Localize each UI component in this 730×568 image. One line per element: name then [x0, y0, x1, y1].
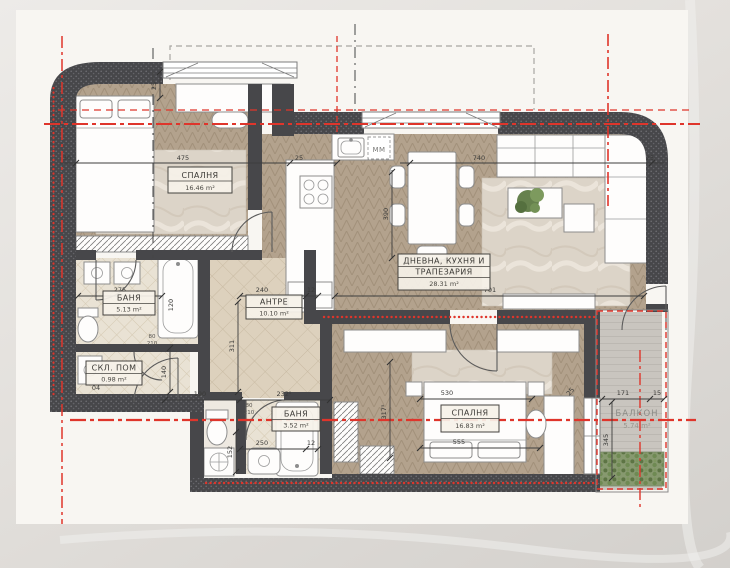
dim-wall-b: 25 — [150, 82, 158, 90]
room-label-storage: СКЛ. ПОМ 0.98 m² — [86, 361, 142, 385]
wall-bath1-right — [198, 258, 210, 394]
living-name-2: ТРАПЕЗАРИЯ — [414, 268, 472, 277]
bath2-name: БАНЯ — [284, 410, 308, 419]
dim-balcony-width: 171 — [617, 389, 629, 397]
balcony-planter — [598, 452, 664, 486]
dim-door2-w: 80 — [246, 403, 253, 409]
dim-bed2-depth: 317⁵ — [380, 404, 388, 419]
room-label-bedroom2: СПАЛНЯ 16.83 m² — [441, 405, 499, 432]
dim-entry-width: 240 — [256, 286, 268, 294]
window-living — [362, 112, 500, 128]
room-label-living: ДНЕВНА, КУХНЯ И ТРАПЕЗАРИЯ 28.31 m² — [398, 254, 490, 290]
living-area: 28.31 m² — [429, 280, 459, 288]
dim-partition-a: 12 — [307, 286, 315, 294]
room-label-bedroom1: СПАЛНЯ 16.46 m² — [168, 167, 232, 193]
stove — [300, 176, 332, 208]
room-label-bath1: БАНЯ 5.13 m² — [103, 291, 155, 315]
dim-kitchen-depth: 390 — [382, 208, 390, 220]
entry-area: 10.10 m² — [259, 310, 289, 318]
wall-bedroom1-right — [248, 84, 262, 210]
floor-plan-page: 475 30 25 740 25 390 701 240 12 275 311 … — [0, 0, 730, 568]
dim-bed2-width2: 555 — [453, 438, 465, 446]
dim-left-niche: 30 — [63, 154, 71, 162]
room-label-entry: АНТРЕ 10.10 m² — [246, 295, 302, 319]
dim-balcony-edge: 15 — [653, 389, 661, 397]
wall-storage-divider — [76, 344, 198, 352]
dim-partition-b: 12 — [307, 439, 315, 447]
dim-bath2-depth: 152 — [226, 446, 234, 458]
floor-plan-canvas: 475 30 25 740 25 390 701 240 12 275 311 … — [0, 0, 730, 568]
bedroom1-area: 16.46 m² — [185, 184, 215, 192]
storage-area: 0.98 m² — [101, 376, 127, 384]
bath2-area: 3.52 m² — [283, 422, 309, 430]
dim-wall-a: 25 — [295, 154, 303, 162]
dim-bed2-width: 530 — [441, 389, 453, 397]
wardrobe-bedroom1 — [76, 236, 248, 252]
storage-name: СКЛ. ПОМ — [92, 364, 137, 373]
bedroom1-name: СПАЛНЯ — [181, 171, 218, 180]
bed-bedroom1 — [76, 96, 154, 232]
dim-bath2-width: 250 — [256, 439, 268, 447]
balcony-area: 5.74 m² — [623, 422, 651, 430]
living-name-1: ДНЕВНА, КУХНЯ И — [403, 257, 485, 266]
bath1-name: БАНЯ — [117, 294, 141, 303]
wall-bath1-top-a — [76, 250, 96, 260]
dim-bedroom1-width: 475 — [177, 154, 189, 162]
floor-entry-strip — [304, 324, 320, 394]
dim-hall-a: 140 — [160, 366, 168, 378]
dim-wall-c: 25 — [646, 154, 654, 162]
wall-kitchen-entry — [304, 250, 316, 318]
dim-hall-c: 232⁵ — [276, 390, 291, 398]
dim-hall-b: 190 — [194, 390, 206, 398]
room-label-bath2: БАНЯ 3.52 m² — [272, 407, 320, 431]
dim-door1-h: 210 — [147, 341, 158, 347]
dim-door1-w: 80 — [149, 334, 156, 340]
dim-door2-h: 210 — [244, 410, 255, 416]
bedroom2-area: 16.83 m² — [455, 422, 485, 430]
dim-shaft: 120 — [167, 299, 175, 311]
dim-balcony-depth: 345 — [602, 434, 610, 446]
bedroom2-name: СПАЛНЯ — [451, 409, 488, 418]
bath1-area: 5.13 m² — [116, 306, 142, 314]
entry-name: АНТРЕ — [260, 298, 288, 307]
window-bedroom1 — [163, 62, 297, 78]
dim-entry-depth: 311 — [228, 340, 236, 352]
dim-living-width: 740 — [473, 154, 485, 162]
balcony-name: БАЛКОН — [615, 409, 658, 419]
dishwasher-label: ММ — [372, 146, 385, 154]
